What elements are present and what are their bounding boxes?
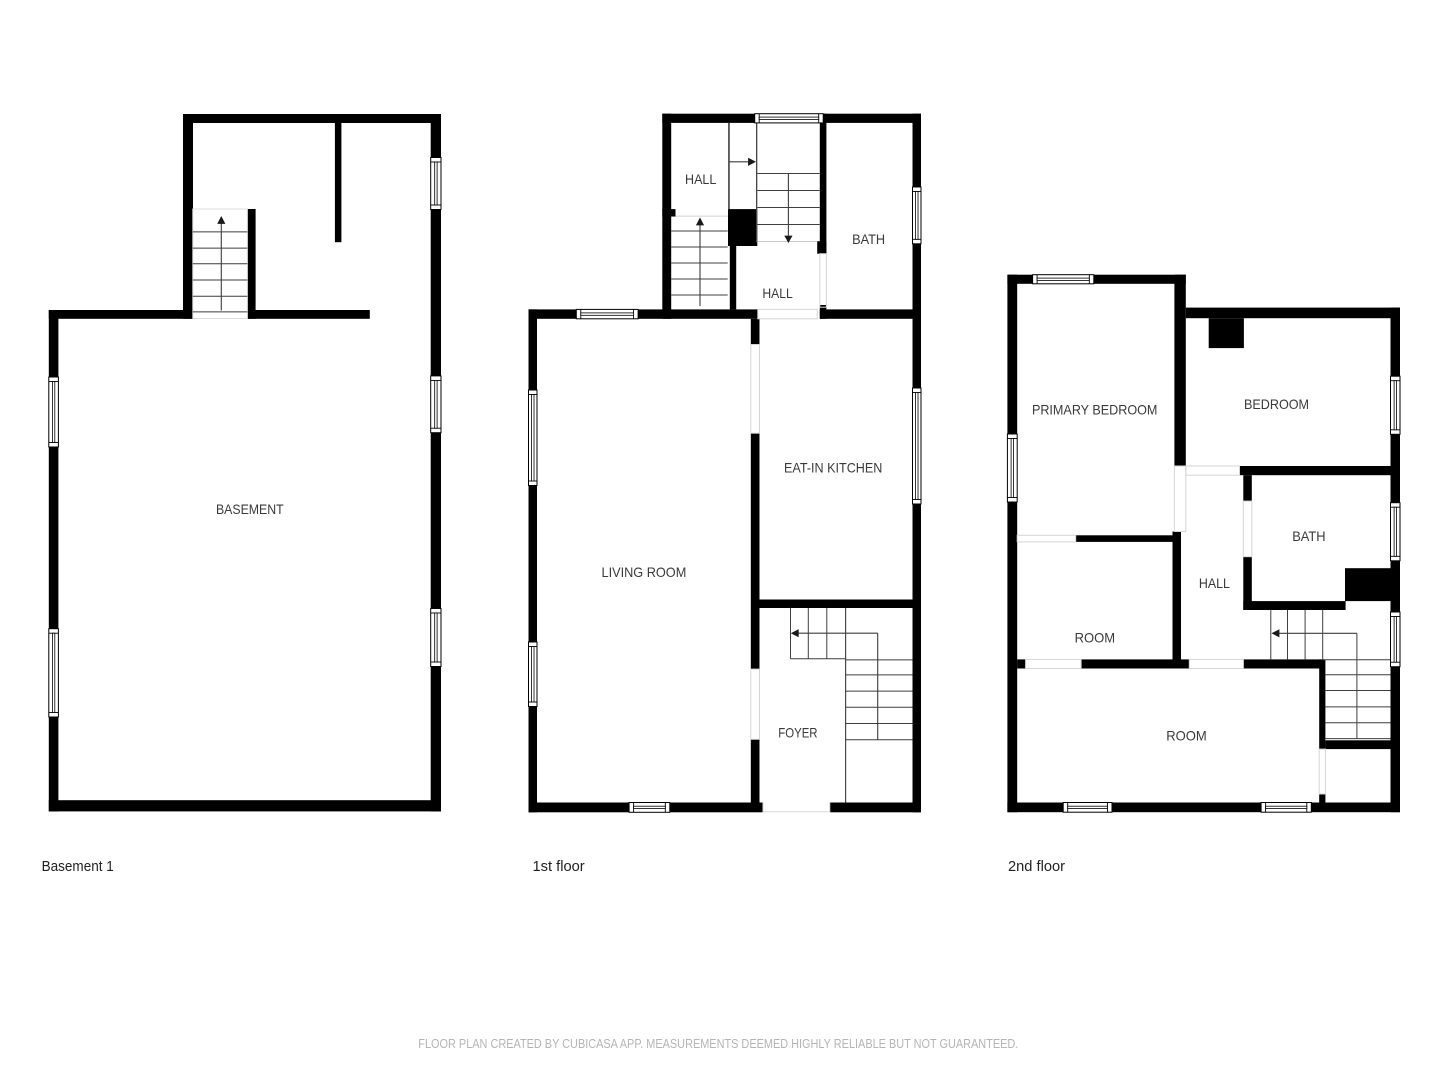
svg-text:LIVING ROOM: LIVING ROOM xyxy=(602,565,687,580)
svg-text:HALL: HALL xyxy=(1199,576,1230,591)
svg-text:PRIMARY BEDROOM: PRIMARY BEDROOM xyxy=(1032,402,1158,417)
svg-text:ROOM: ROOM xyxy=(1075,631,1116,646)
svg-text:FLOOR PLAN CREATED BY CUBICASA: FLOOR PLAN CREATED BY CUBICASA APP. MEAS… xyxy=(418,1036,1018,1051)
svg-text:FOYER: FOYER xyxy=(778,725,817,740)
svg-text:Basement 1: Basement 1 xyxy=(42,859,114,875)
svg-text:2nd floor: 2nd floor xyxy=(1008,859,1065,875)
svg-text:HALL: HALL xyxy=(685,172,717,187)
svg-text:ROOM: ROOM xyxy=(1166,729,1207,744)
svg-text:1st floor: 1st floor xyxy=(533,859,585,875)
svg-text:BEDROOM: BEDROOM xyxy=(1244,397,1309,412)
svg-text:BATH: BATH xyxy=(852,232,885,247)
svg-text:EAT-IN KITCHEN: EAT-IN KITCHEN xyxy=(784,461,882,476)
svg-text:HALL: HALL xyxy=(762,286,793,301)
svg-text:BATH: BATH xyxy=(1292,529,1325,544)
svg-text:BASEMENT: BASEMENT xyxy=(216,502,284,517)
